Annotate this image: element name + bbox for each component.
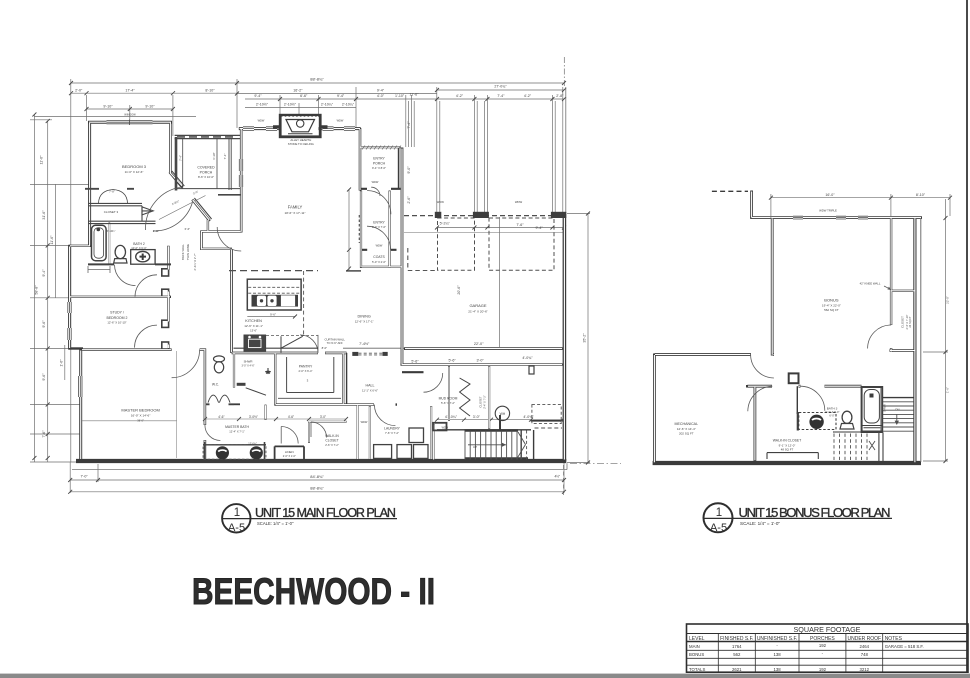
svg-text:ENTRY: ENTRY xyxy=(373,157,385,161)
svg-text:21'-4" X 20'-6": 21'-4" X 20'-6" xyxy=(468,309,488,313)
svg-text:KITCHEN: KITCHEN xyxy=(245,319,262,323)
svg-text:4½": 4½" xyxy=(555,475,561,479)
svg-text:12'-4" X 7'-1": 12'-4" X 7'-1" xyxy=(229,430,245,434)
svg-text:CLOSET: CLOSET xyxy=(901,316,905,328)
svg-text:BONUS: BONUS xyxy=(824,298,839,303)
svg-text:12'-6" X 17'-1": 12'-6" X 17'-1" xyxy=(355,320,374,324)
svg-text:7'-4½": 7'-4½" xyxy=(359,342,370,346)
svg-text:11'-6": 11'-6" xyxy=(410,93,420,97)
svg-text:4'-0": 4'-0" xyxy=(377,94,385,98)
svg-text:4'-2": 4'-2" xyxy=(456,94,464,98)
svg-text:42" KNEE WALL: 42" KNEE WALL xyxy=(860,282,881,286)
svg-text:2621: 2621 xyxy=(732,667,742,672)
svg-text:PORCH: PORCH xyxy=(200,171,213,175)
svg-text:13'-6": 13'-6" xyxy=(250,329,257,333)
svg-text:9'-10": 9'-10" xyxy=(103,104,113,108)
svg-text:138: 138 xyxy=(774,667,782,672)
svg-text:FAMILY: FAMILY xyxy=(288,205,303,210)
svg-text:48 SQ FT: 48 SQ FT xyxy=(781,448,794,452)
svg-text:SCALE: 1/4" = 1'-0": SCALE: 1/4" = 1'-0" xyxy=(740,521,780,526)
svg-text:9'-4" X 8'-6": 9'-4" X 8'-6" xyxy=(372,166,386,170)
svg-text:8'-10": 8'-10" xyxy=(916,193,926,197)
svg-text:1'-6": 1'-6" xyxy=(946,387,950,393)
svg-text:WDW TRIPLE: WDW TRIPLE xyxy=(819,209,837,213)
svg-text:4'-10¼": 4'-10¼" xyxy=(445,415,458,419)
svg-text:35'-2": 35'-2" xyxy=(583,333,587,343)
svg-text:FINISHED S.F.: FINISHED S.F. xyxy=(720,636,753,642)
svg-text:5'-2¼": 5'-2¼" xyxy=(440,222,451,226)
svg-text:BEDROOM 3: BEDROOM 3 xyxy=(122,164,147,169)
svg-text:UNIT 15 BONUS FLOOR PLAN: UNIT 15 BONUS FLOOR PLAN xyxy=(739,505,891,520)
svg-text:UNFINISHED S.F.: UNFINISHED S.F. xyxy=(757,636,798,642)
svg-text:7'-4": 7'-4" xyxy=(178,155,182,161)
svg-text:HALL: HALL xyxy=(366,384,375,388)
svg-text:LEVEL: LEVEL xyxy=(689,636,705,642)
svg-text:WDW: WDW xyxy=(258,119,265,123)
svg-text:5'-6": 5'-6" xyxy=(449,358,457,362)
svg-text:562: 562 xyxy=(733,652,741,657)
svg-text:3212: 3212 xyxy=(860,667,870,672)
svg-text:MAIN: MAIN xyxy=(689,644,700,649)
svg-text:DN: DN xyxy=(895,408,899,412)
svg-text:5'-10¼": 5'-10¼" xyxy=(107,229,116,233)
svg-text:17'-4": 17'-4" xyxy=(125,88,135,92)
svg-text:GARAGE: GARAGE xyxy=(469,303,486,308)
svg-text:88'-8¾": 88'-8¾" xyxy=(310,486,324,491)
svg-text:ENTRY: ENTRY xyxy=(373,220,385,224)
svg-text:7'-6": 7'-6" xyxy=(516,223,524,227)
svg-text:WDW: WDW xyxy=(376,244,383,248)
svg-text:2'-4" X 7'-10": 2'-4" X 7'-10" xyxy=(905,314,909,329)
svg-text:7'-0": 7'-0" xyxy=(81,475,89,479)
svg-text:WDW: WDW xyxy=(437,200,445,204)
svg-text:12'-6" X 10'-10": 12'-6" X 10'-10" xyxy=(107,321,126,325)
svg-text:11'-6": 11'-6" xyxy=(40,155,44,165)
svg-text:6'-6": 6'-6" xyxy=(185,227,191,231)
svg-text:7'-8": 7'-8" xyxy=(109,190,115,194)
svg-text:2'-10½": 2'-10½" xyxy=(256,103,269,107)
svg-text:BONUS: BONUS xyxy=(689,652,704,657)
svg-text:SCALE: 1/4" = 1'-0": SCALE: 1/4" = 1'-0" xyxy=(257,521,294,526)
svg-text:5'-6": 5'-6" xyxy=(411,360,419,364)
svg-text:BEDROOM 2: BEDROOM 2 xyxy=(106,316,127,320)
svg-text:WDW: WDW xyxy=(361,420,368,424)
svg-text:9'-4": 9'-4" xyxy=(377,89,385,93)
svg-text:CLOSET: CLOSET xyxy=(325,439,338,443)
svg-text:11'-0" X 12'-6": 11'-0" X 12'-6" xyxy=(125,170,144,174)
svg-text:COATS: COATS xyxy=(373,255,385,259)
svg-text:WINDOW: WINDOW xyxy=(124,113,136,117)
svg-text:BACK WALL: BACK WALL xyxy=(181,244,185,260)
svg-text:UP: UP xyxy=(473,445,477,449)
svg-text:1'-6": 1'-6" xyxy=(60,359,64,367)
svg-text:GARAGE = 518 S.F.: GARAGE = 518 S.F. xyxy=(885,644,924,649)
svg-text:3'-0": 3'-0" xyxy=(320,415,326,419)
svg-text:PANTRY: PANTRY xyxy=(299,365,313,369)
svg-text:WDW: WDW xyxy=(337,119,344,123)
svg-text:7'-4": 7'-4" xyxy=(407,121,411,129)
svg-text:WALK-IN: WALK-IN xyxy=(325,434,339,438)
svg-text:3'-0": 3'-0" xyxy=(477,358,485,362)
svg-text:9'-6": 9'-6" xyxy=(42,320,46,328)
svg-text:16'-0" X 14'-6": 16'-0" X 14'-6" xyxy=(131,414,151,418)
svg-text:9'-10": 9'-10" xyxy=(145,104,155,108)
svg-text:BATH 3: BATH 3 xyxy=(827,407,838,411)
svg-text:STONE TO CEILING: STONE TO CEILING xyxy=(288,142,314,146)
svg-text:2'-0" X 6'-4": 2'-0" X 6'-4" xyxy=(299,369,313,373)
svg-text:2'-11": 2'-11" xyxy=(153,229,159,233)
svg-text:9'-4": 9'-4" xyxy=(337,94,345,98)
svg-text:192: 192 xyxy=(819,643,827,648)
svg-text:WDW: WDW xyxy=(515,200,523,204)
svg-text:2'-6": 2'-6" xyxy=(407,196,411,204)
svg-text:7'-4": 7'-4" xyxy=(497,94,505,98)
svg-text:NOTES: NOTES xyxy=(885,636,903,642)
svg-text:2'-0": 2'-0" xyxy=(75,88,83,92)
svg-text:2464: 2464 xyxy=(860,644,870,649)
svg-text:202 SQ FT: 202 SQ FT xyxy=(679,432,694,436)
svg-text:4'-0¾": 4'-0¾" xyxy=(522,356,533,360)
svg-text:WALK-IN CLOSET: WALK-IN CLOSET xyxy=(773,439,802,443)
svg-text:31'-6": 31'-6" xyxy=(42,210,46,220)
svg-text:DINING: DINING xyxy=(358,315,371,319)
svg-text:1: 1 xyxy=(716,507,722,519)
svg-text:MASTER BATH: MASTER BATH xyxy=(225,425,249,429)
svg-text:9'-4": 9'-4" xyxy=(536,226,544,230)
svg-text:11'-1" X 6'-6": 11'-1" X 6'-6" xyxy=(362,388,378,392)
svg-text:A-5: A-5 xyxy=(228,522,245,534)
svg-text:LINEN: LINEN xyxy=(285,450,294,454)
svg-text:9'-6": 9'-6" xyxy=(42,373,46,381)
svg-text:7'-6": 7'-6" xyxy=(42,430,46,438)
svg-text:3'-0½": 3'-0½" xyxy=(249,415,258,419)
svg-text:2'-4¼" X 2'-?": 2'-4¼" X 2'-?" xyxy=(193,254,197,271)
svg-text:A-5: A-5 xyxy=(710,522,727,534)
svg-text:6'-6": 6'-6" xyxy=(300,94,308,98)
svg-text:4'-6": 4'-6" xyxy=(218,415,224,419)
svg-text:10'-0" X 6'-0": 10'-0" X 6'-0" xyxy=(131,246,147,250)
svg-text:12'-6" X 14'-4": 12'-6" X 14'-4" xyxy=(677,427,696,431)
svg-text:24 SQ FT: 24 SQ FT xyxy=(908,316,912,328)
svg-text:8'-6" X 10'-0": 8'-6" X 10'-0" xyxy=(198,175,214,179)
svg-text:9'-4": 9'-4" xyxy=(42,269,46,277)
svg-text:TWIN HOME: TWIN HOME xyxy=(186,244,190,260)
svg-text:3'-0": 3'-0" xyxy=(473,415,481,419)
svg-text:SHWR: SHWR xyxy=(244,360,253,364)
svg-text:UNDER ROOF: UNDER ROOF xyxy=(847,636,881,642)
svg-text:PORCHES: PORCHES xyxy=(810,636,835,642)
svg-text:88'-8¾": 88'-8¾" xyxy=(310,77,324,82)
svg-text:19'-4" X 22'-0": 19'-4" X 22'-0" xyxy=(822,304,841,308)
svg-text:20'-6": 20'-6" xyxy=(457,285,461,295)
svg-text:58'-8": 58'-8" xyxy=(35,285,39,295)
svg-text:SHWR: SHWR xyxy=(883,404,887,412)
svg-text:192: 192 xyxy=(819,667,827,672)
svg-text:W.C.: W.C. xyxy=(212,382,219,386)
svg-text:2'-6" X 7'-2": 2'-6" X 7'-2" xyxy=(325,443,339,447)
svg-text:WDW: WDW xyxy=(372,180,379,184)
svg-text:2'-10¼": 2'-10¼" xyxy=(321,103,334,107)
svg-text:1: 1 xyxy=(234,507,240,519)
svg-text:BATH 2: BATH 2 xyxy=(133,242,145,246)
svg-text:3'-0" X 4'-6": 3'-0" X 4'-6" xyxy=(241,365,254,368)
svg-text:16'-0": 16'-0" xyxy=(825,193,835,197)
svg-text:BEECHWOOD - II: BEECHWOOD - II xyxy=(192,570,435,612)
svg-text:562 SQ FT: 562 SQ FT xyxy=(824,308,839,312)
svg-text:5'-0" X 2'-6": 5'-0" X 2'-6" xyxy=(372,260,386,264)
svg-text:12'-6" X 11'-1": 12'-6" X 11'-1" xyxy=(244,324,263,328)
svg-text:1764: 1764 xyxy=(732,644,742,649)
svg-text:22'-0": 22'-0" xyxy=(474,342,484,346)
svg-text:4'-6": 4'-6" xyxy=(288,415,294,419)
svg-text:PORCH: PORCH xyxy=(373,161,386,165)
svg-text:84'-8¾": 84'-8¾" xyxy=(310,474,324,479)
svg-text:TOTALS: TOTALS xyxy=(689,667,705,672)
svg-text:5'-6" X 7'-2": 5'-6" X 7'-2" xyxy=(441,401,455,405)
svg-text:9'-0" X 7'-6": 9'-0" X 7'-6" xyxy=(372,225,386,229)
svg-text:748: 748 xyxy=(861,652,869,657)
svg-text:16'-2": 16'-2" xyxy=(293,89,303,93)
svg-text:STUDY /: STUDY / xyxy=(110,311,124,315)
svg-text:MECHANICAL: MECHANICAL xyxy=(675,422,699,426)
svg-text:CLOSET: CLOSET xyxy=(479,396,483,407)
svg-text:2'-4" X 7'-2": 2'-4" X 7'-2" xyxy=(483,395,487,409)
svg-text:SQUARE FOOTAGE: SQUARE FOOTAGE xyxy=(794,625,861,634)
svg-text:6'-10": 6'-10" xyxy=(212,152,216,159)
svg-text:CLOSET 3: CLOSET 3 xyxy=(104,210,119,214)
svg-text:8'-0": 8'-0" xyxy=(322,346,328,350)
svg-text:9'-6": 9'-6" xyxy=(270,312,276,316)
svg-text:11'-6": 11'-6" xyxy=(50,235,54,245)
svg-text:138: 138 xyxy=(774,652,782,657)
svg-text:1'-10": 1'-10" xyxy=(395,94,405,98)
svg-text:2'-6" X 1'-6": 2'-6" X 1'-6" xyxy=(283,455,296,458)
svg-text:4'-2": 4'-2" xyxy=(524,94,532,98)
svg-text:MUD ROOM: MUD ROOM xyxy=(439,397,458,401)
svg-text:8'-10": 8'-10" xyxy=(205,88,215,92)
svg-text:2'-10¼": 2'-10¼" xyxy=(342,103,355,107)
svg-text:2'-8": 2'-8" xyxy=(556,94,564,98)
svg-text:7'-6" X 7'-2": 7'-6" X 7'-2" xyxy=(385,431,399,435)
svg-text:7'-4": 7'-4" xyxy=(223,154,227,160)
svg-text:UNIT 15 MAIN FLOOR PLAN: UNIT 15 MAIN FLOOR PLAN xyxy=(255,506,396,520)
svg-text:12'-0¾": 12'-0¾" xyxy=(248,442,257,446)
svg-text:COVERED: COVERED xyxy=(197,166,215,170)
svg-text:36'-0": 36'-0" xyxy=(137,418,144,422)
svg-text:WH: WH xyxy=(500,412,506,416)
svg-text:9'-4": 9'-4" xyxy=(254,94,262,98)
svg-text:LAUNDRY: LAUNDRY xyxy=(384,427,400,431)
svg-text:6'-0": 6'-0" xyxy=(829,413,834,417)
svg-text:18'-6" X 17'-11": 18'-6" X 17'-11" xyxy=(284,211,305,215)
svg-text:9'-0": 9'-0" xyxy=(407,166,411,174)
svg-text:22'-0": 22'-0" xyxy=(946,296,950,304)
svg-text:2'-10½": 2'-10½" xyxy=(284,103,297,107)
svg-text:TO 9'-6" AFF: TO 9'-6" AFF xyxy=(327,341,343,345)
svg-text:MASTER BEDROOM: MASTER BEDROOM xyxy=(121,408,159,413)
svg-text:27'-0¾": 27'-0¾" xyxy=(494,85,507,89)
